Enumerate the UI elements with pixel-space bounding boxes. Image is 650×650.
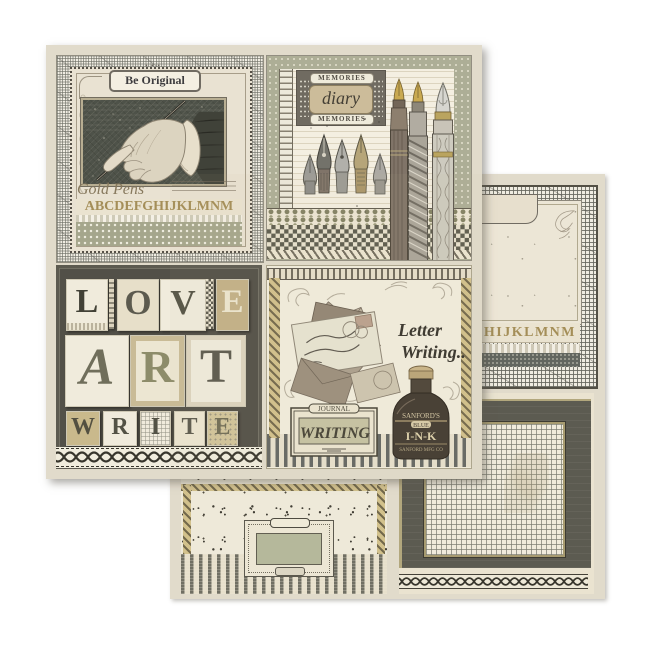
- svg-text:JOURNAL: JOURNAL: [318, 405, 350, 413]
- svg-text:SANFORD'S: SANFORD'S: [402, 412, 440, 420]
- svg-text:WRITING: WRITING: [300, 425, 371, 442]
- svg-text:SANFORD MFG CO: SANFORD MFG CO: [399, 448, 443, 453]
- svg-text:I-N-K: I-N-K: [406, 429, 437, 443]
